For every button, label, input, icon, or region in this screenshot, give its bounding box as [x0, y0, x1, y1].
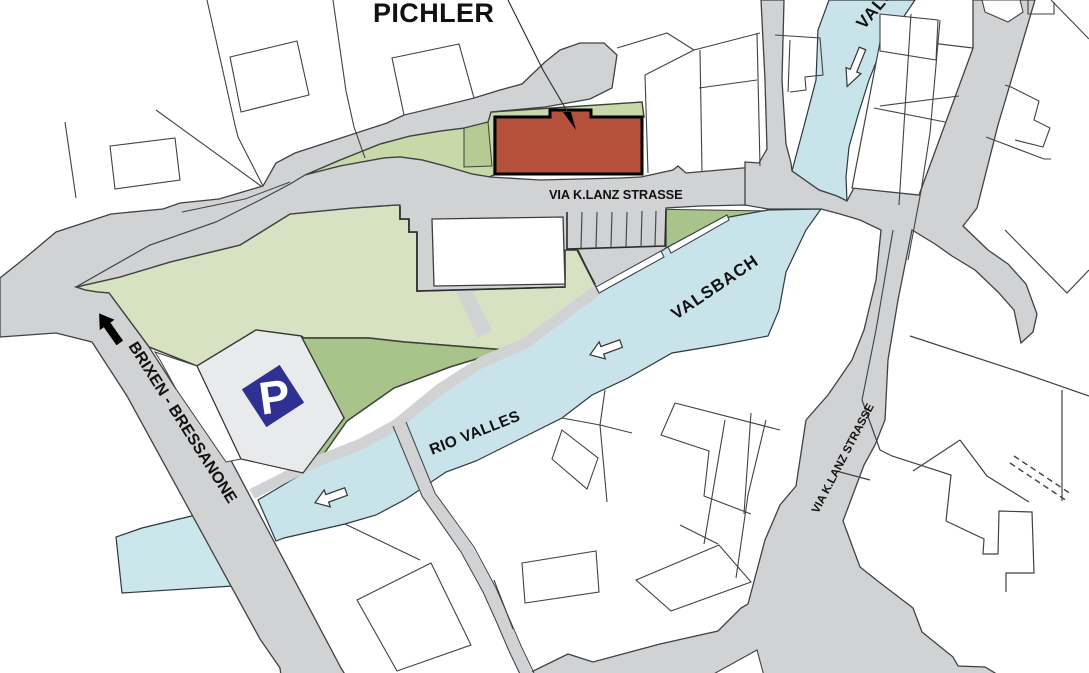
svg-text:VIA K.LANZ STRASSE: VIA K.LANZ STRASSE: [549, 187, 683, 202]
svg-text:PICHLER: PICHLER: [373, 0, 494, 28]
